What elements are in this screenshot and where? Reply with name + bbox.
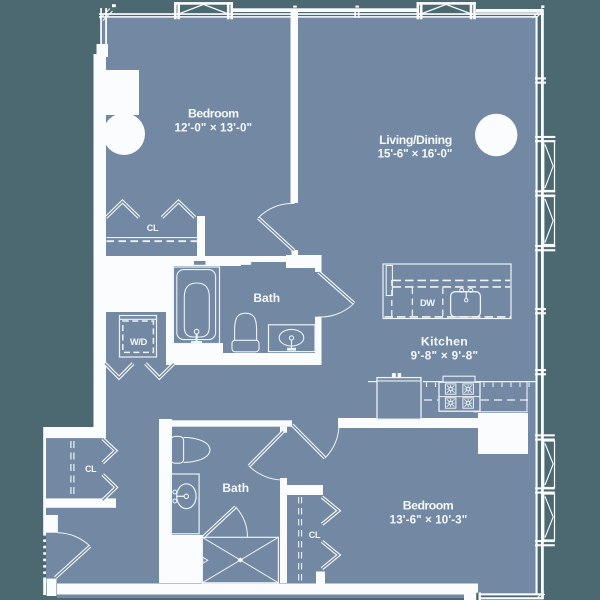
svg-text:Bath: Bath [222,481,249,495]
svg-text:CL: CL [85,464,97,474]
svg-text:CL: CL [309,530,321,540]
svg-text:13'-6" × 10'-3": 13'-6" × 10'-3" [390,514,468,527]
svg-text:DW: DW [420,298,435,308]
svg-text:Bedroom: Bedroom [403,499,454,513]
svg-text:CL: CL [147,223,159,233]
svg-text:15'-6" × 16'-0": 15'-6" × 16'-0" [378,147,453,160]
svg-text:9'-8" × 9'-8": 9'-8" × 9'-8" [411,350,479,363]
svg-text:Bath: Bath [253,291,280,305]
svg-text:Bedroom: Bedroom [188,107,239,121]
svg-text:Kitchen: Kitchen [421,335,468,349]
svg-text:W/D: W/D [130,337,148,347]
svg-text:12'-0" × 13'-0": 12'-0" × 13'-0" [174,122,252,135]
svg-text:Living/Dining: Living/Dining [379,133,452,147]
